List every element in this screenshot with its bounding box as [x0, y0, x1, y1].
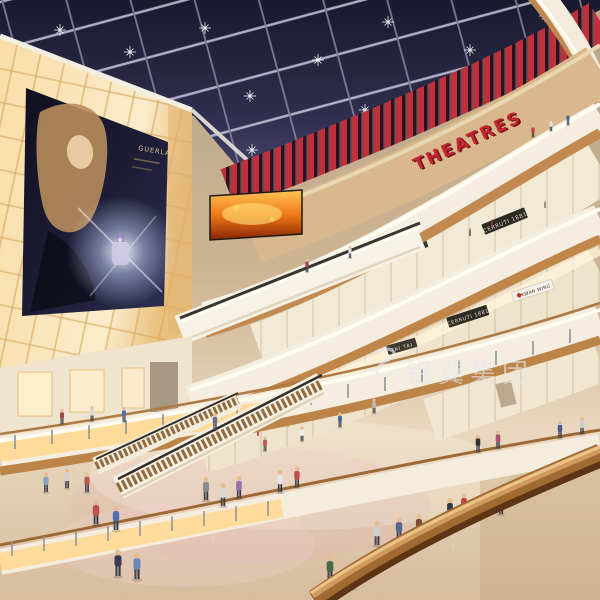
led-fire-screen — [210, 190, 302, 240]
store-doorway — [150, 362, 178, 412]
watermark-text: 铝翼集团 — [406, 359, 534, 389]
mannequin — [469, 228, 471, 236]
mannequin — [491, 219, 493, 227]
mannequin — [544, 201, 545, 208]
mall-atrium-rendering: GUERLAIN THEATRES THEATRES TAI TAI CERRU… — [0, 0, 600, 600]
scene-canvas: GUERLAIN THEATRES THEATRES TAI TAI CERRU… — [0, 0, 600, 600]
